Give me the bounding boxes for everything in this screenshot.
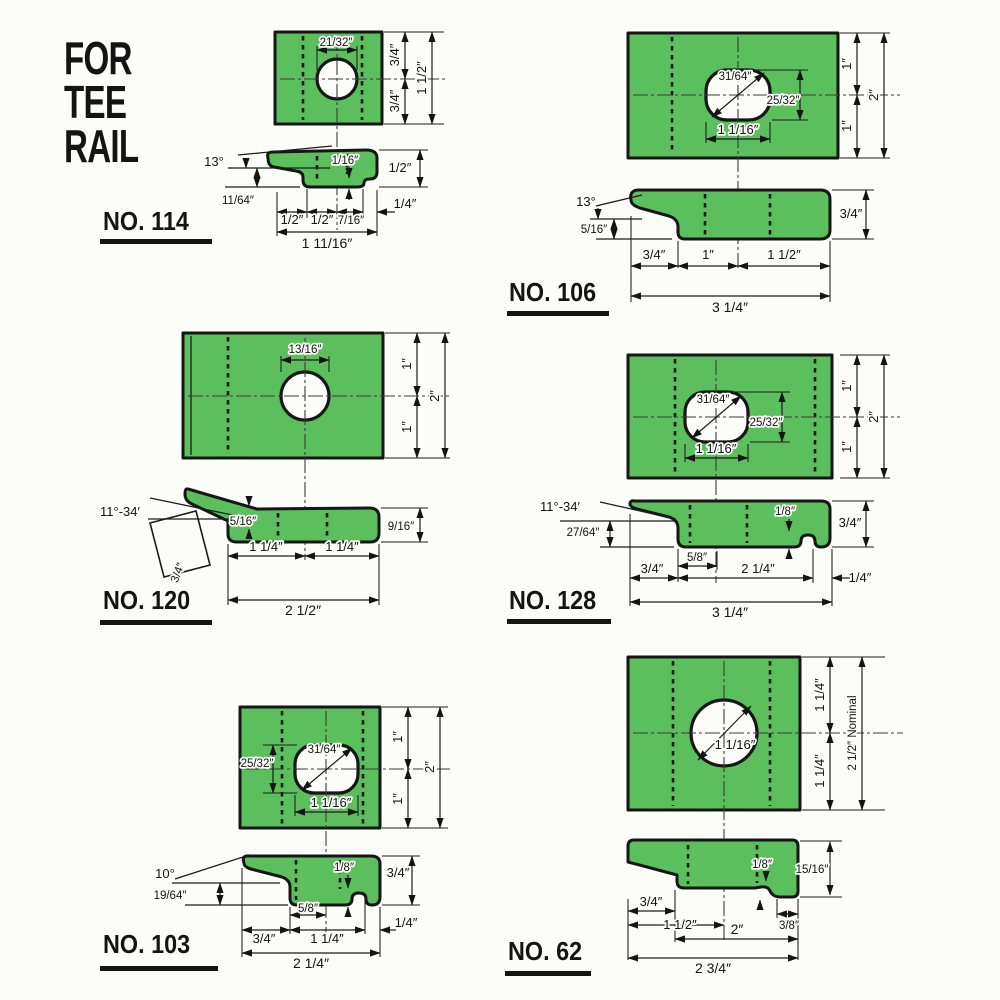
no103-dim-diag: 31/64″ [308, 744, 341, 756]
no128-dim-upper: 1″ [839, 380, 854, 392]
no114-dim-angle: 13° [204, 154, 224, 169]
no120-side-plate [185, 489, 379, 542]
no114-dim-upper: 3/4″ [387, 43, 402, 66]
no128-dim-slot-width: 1 1/16″ [696, 441, 737, 456]
part-underline-114 [100, 239, 212, 244]
no114-dim-thick: 1/2″ [389, 160, 412, 175]
part-label-128: NO. 128 [509, 585, 596, 616]
part-label-103: NO. 103 [103, 929, 190, 960]
no103-dim-height: 2″ [422, 761, 437, 773]
no120-dim-hole: 13/16″ [289, 344, 322, 356]
no103-dim-d2: 3/4″ [253, 931, 276, 946]
no114-dim-total: 1 11/16″ [302, 235, 353, 251]
no128-dim-d2: 5/8″ [687, 552, 707, 564]
no106-side-plate [631, 190, 830, 239]
no103-dim-upper: 1″ [390, 731, 405, 743]
no103-dim-total: 2 1/4″ [293, 955, 329, 971]
page-title-line3: RAIL [64, 124, 138, 168]
no120-dim-thick: 9/16″ [388, 521, 414, 533]
no114-dim-d4: 1/4″ [394, 196, 417, 211]
no103-figure: 25/32″ 31/64″ 1 1/16″ 1″ 1″ 2″ 10° 19/64… [154, 707, 450, 971]
part-underline-103 [100, 966, 218, 971]
no128-dim-angle: 11°-34′ [540, 499, 580, 514]
no106-dim-height: 2″ [866, 89, 881, 101]
no114-dim-lower: 3/4″ [387, 89, 402, 112]
no120-dim-d1: 1 1/4″ [249, 539, 283, 554]
no120-dim-d2: 1 1/4″ [325, 539, 359, 554]
no120-dim-lip: 5/16″ [230, 516, 256, 528]
no120-dim-height: 2″ [427, 390, 442, 402]
no128-dim-diag: 31/64″ [697, 394, 730, 406]
no114-dim-step: 1/16″ [332, 155, 358, 167]
no103-dim-lower: 1″ [390, 793, 405, 805]
no103-dim-d3: 1 1/4″ [310, 931, 344, 946]
no128-dim-d4: 1/4″ [849, 570, 872, 585]
no62-dim-d3: 2″ [731, 921, 744, 937]
no120-figure: 13/16″ 1″ 1″ 2″ 11°-34′ 3/4″ 5/16″ 9/16″… [100, 333, 450, 618]
no106-dim-d1: 3/4″ [643, 247, 666, 262]
no62-dim-notch: 1/8″ [752, 859, 772, 871]
no62-dim-height: 2 1/2″ Nominal [847, 695, 859, 770]
no62-dim-hole: 1 1/16″ [715, 737, 756, 752]
no114-figure: 21/32″ 3/4″ 3/4″ 1 1/2″ 13° 11/64″ 1/16″… [204, 32, 446, 251]
part-underline-120 [100, 620, 212, 625]
no114-dim-height: 1 1/2″ [414, 61, 429, 95]
page-title-line2: TEE [64, 80, 126, 124]
no106-dim-diag: 31/64″ [719, 71, 752, 83]
no62-dim-thick: 15/16″ [796, 864, 829, 876]
part-underline-106 [507, 311, 609, 316]
no114-dim-d3: 7/16″ [338, 215, 364, 227]
no62-dim-upper: 1 1/4″ [812, 678, 827, 712]
part-label-120: NO. 120 [103, 585, 190, 616]
no106-dim-slot-width: 1 1/16″ [718, 122, 759, 137]
no106-figure: 31/64″ 25/32″ 1 1/16″ 1″ 1″ 2″ 13° 5/16″… [576, 33, 900, 315]
no128-dim-total: 3 1/4″ [712, 604, 748, 620]
no106-dim-lip: 5/16″ [581, 224, 607, 236]
no114-dim-tip: 11/64″ [222, 195, 254, 207]
part-label-62: NO. 62 [508, 936, 582, 967]
no106-dim-thick: 3/4″ [840, 206, 863, 221]
no62-dim-d2: 1 1/2″ [663, 917, 697, 932]
no114-dim-hole-width: 21/32″ [320, 37, 353, 49]
no103-dim-lip: 19/64″ [154, 890, 187, 902]
no62-dim-d4: 3/8″ [779, 920, 799, 932]
no128-side-plate [630, 501, 830, 547]
no120-dim-upper: 1″ [399, 358, 414, 370]
no62-figure: 1 1/16″ 1 1/4″ 1 1/4″ 2 1/2″ Nominal 1/8… [628, 657, 903, 976]
drawing-sheet: 21/32″ 3/4″ 3/4″ 1 1/2″ 13° 11/64″ 1/16″… [0, 0, 1000, 1000]
no114-dim-d1: 1/2″ [281, 212, 304, 227]
part-underline-128 [507, 619, 611, 624]
no103-dim-slot-height: 25/32″ [241, 758, 274, 770]
no103-dim-slot-width: 1 1/16″ [311, 795, 352, 810]
no103-dim-angle: 10° [155, 866, 175, 881]
page-title-line1: FOR [64, 36, 132, 80]
no103-dim-thick: 3/4″ [387, 865, 410, 880]
no103-dim-d1: 5/8″ [298, 903, 318, 915]
no120-dim-angle: 11°-34′ [100, 504, 140, 519]
no103-dim-d4: 1/4″ [395, 915, 418, 930]
no103-dim-notch: 1/8″ [334, 862, 354, 874]
no106-dim-total: 3 1/4″ [712, 299, 748, 315]
part-label-114: NO. 114 [103, 206, 189, 237]
no106-dim-upper: 1″ [839, 58, 854, 70]
no128-dim-lower: 1″ [839, 441, 854, 453]
drawing-canvas: 21/32″ 3/4″ 3/4″ 1 1/2″ 13° 11/64″ 1/16″… [0, 0, 1000, 1000]
no128-dim-d1: 3/4″ [641, 561, 664, 576]
no62-dim-d1: 3/4″ [640, 894, 663, 909]
no114-dim-d2: 1/2″ [311, 212, 334, 227]
no128-dim-d3: 2 1/4″ [741, 561, 775, 576]
no128-dim-slot-height: 25/32″ [750, 417, 783, 429]
no128-dim-notch: 1/8″ [775, 506, 795, 518]
no120-dim-total: 2 1/2″ [285, 602, 321, 618]
no128-figure: 31/64″ 25/32″ 1 1/16″ 1″ 1″ 2″ 11°-34′ 2… [540, 355, 900, 620]
no120-dim-lower: 1″ [399, 421, 414, 433]
no106-dim-lower: 1″ [839, 120, 854, 132]
no62-dim-total: 2 3/4″ [695, 960, 731, 976]
no106-dim-d3: 1 1/2″ [767, 247, 801, 262]
no62-side-plate [628, 840, 798, 897]
no106-dim-angle: 13° [576, 194, 596, 209]
no128-dim-lip: 27/64″ [567, 527, 600, 539]
no128-dim-thick: 3/4″ [839, 515, 862, 530]
no103-side-plate [243, 856, 380, 905]
no62-dim-lower: 1 1/4″ [812, 754, 827, 788]
part-underline-62 [505, 971, 591, 976]
no128-dim-height: 2″ [866, 411, 881, 423]
no106-dim-d2: 1″ [702, 247, 714, 262]
no106-dim-slot-height: 25/32″ [767, 95, 800, 107]
part-label-106: NO. 106 [509, 277, 596, 308]
